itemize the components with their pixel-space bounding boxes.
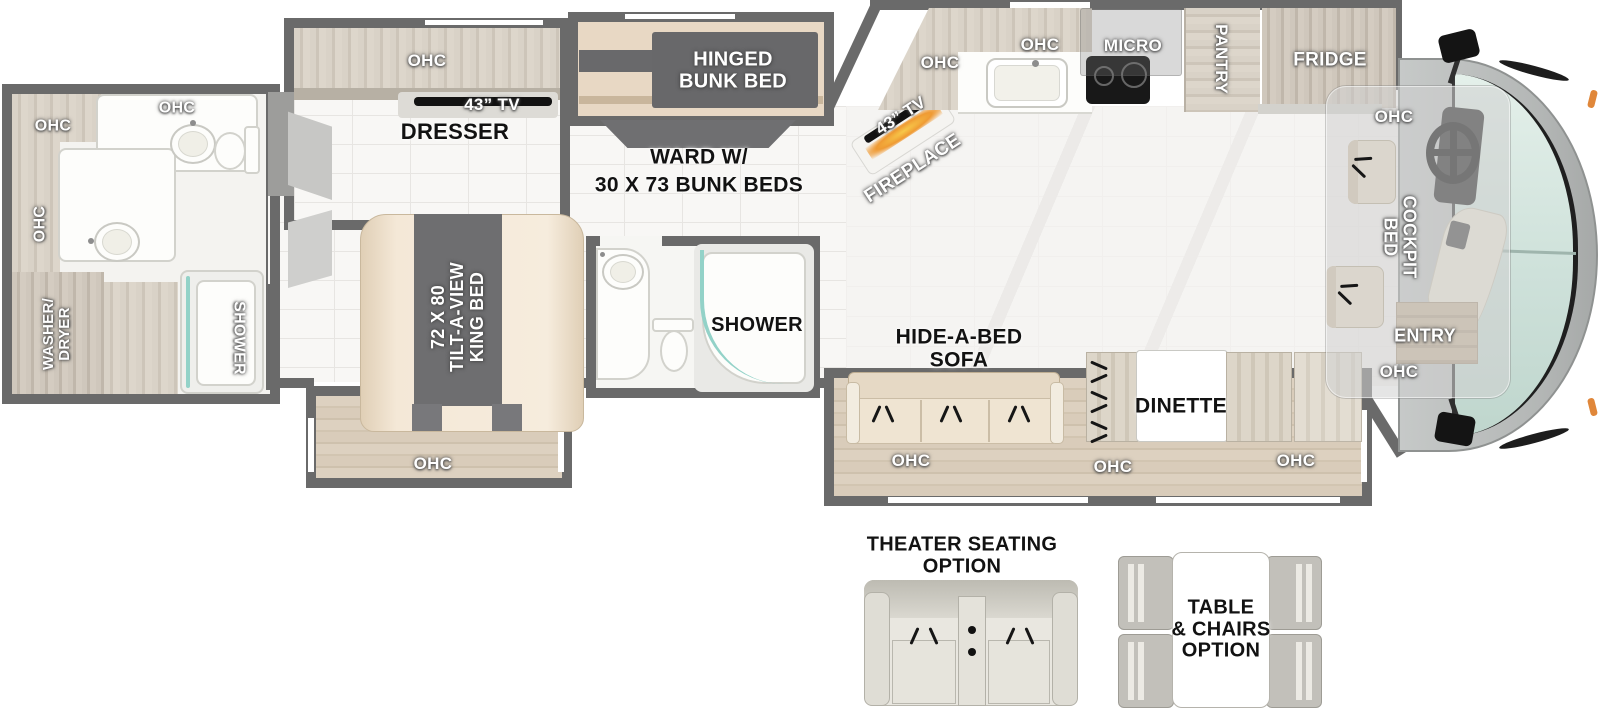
faucet [1032, 60, 1039, 67]
recline-mark [1004, 404, 1034, 424]
recline-mark [1089, 417, 1109, 447]
cupholder [968, 648, 976, 656]
faucet [190, 120, 196, 126]
bed-slide-ohc-label: OHC [414, 455, 453, 473]
bed-foot-cushion [412, 404, 442, 431]
chair-slat [1306, 564, 1312, 622]
kitchen-ohc-label: OHC [1021, 36, 1060, 54]
toilet-tank [244, 126, 260, 174]
bedroom-ohc-label: OHC [408, 52, 447, 70]
fridge-label: FRIDGE [1293, 51, 1367, 72]
rear-ohc-top-label: OHC [159, 99, 195, 116]
recline-mark [936, 404, 966, 424]
rear-ohc-side-label: OHC [31, 206, 48, 242]
sofa-seam [920, 400, 922, 442]
dresser-label: DRESSER [401, 120, 509, 144]
theater-seat-cushion [988, 640, 1050, 704]
recline-mark [1089, 387, 1109, 417]
theater-seat-cushion [892, 640, 956, 704]
entry-label: ENTRY [1394, 326, 1456, 345]
washer-dryer-label: WASHER/ DRYER [41, 298, 73, 370]
chair [1118, 556, 1174, 630]
theater-option-label: THEATER SEATING OPTION [867, 534, 1057, 577]
sink-basin [178, 131, 208, 157]
toilet-bowl [660, 330, 688, 372]
chair-slat [1296, 642, 1302, 700]
sink-basin [102, 229, 132, 255]
chair-slat [1128, 564, 1134, 622]
ward-label: WARD W/ 30 X 73 BUNK BEDS [595, 144, 803, 201]
side-mirror [1437, 28, 1481, 64]
dinette-bench [1226, 352, 1292, 442]
rear-shower-label: SHOWER [230, 301, 247, 375]
recline-mark [1002, 626, 1038, 646]
recline-mark [868, 404, 898, 424]
bed-foot-cushion [492, 404, 522, 431]
sofa-armrest [846, 382, 860, 444]
chair [1266, 634, 1322, 708]
faucet [88, 238, 94, 244]
sink-basin [610, 261, 636, 283]
chair-slat [1306, 642, 1312, 700]
cockpit-ohc-top-label: OHC [1375, 108, 1414, 126]
table-chairs-option-label: TABLE & CHAIRS OPTION [1171, 598, 1270, 663]
chair [1266, 556, 1322, 630]
door-opening [600, 236, 662, 246]
front-ohc-label: OHC [1277, 452, 1316, 470]
slide-indicator [888, 497, 1088, 503]
sink-basin [994, 65, 1060, 101]
faucet [600, 252, 605, 257]
pantry-label: PANTRY [1212, 24, 1230, 94]
sofa-armrest [1050, 382, 1064, 444]
slide-indicator [308, 418, 314, 472]
cockpit-ohc-bottom-label: OHC [1380, 363, 1419, 381]
dinette-label: DINETTE [1135, 396, 1227, 419]
rv-floorplan: OHC OHC OHC WASHER/ DRYER SHOWER OHC 43”… [0, 0, 1600, 709]
cupholder [968, 626, 976, 634]
chair-slat [1128, 642, 1134, 700]
recline-mark [1089, 357, 1109, 387]
bedroom-tv-label: 43” TV [464, 96, 520, 114]
chair-slat [1138, 564, 1144, 622]
kitchen-ohc-corner-label: OHC [921, 54, 960, 72]
chair [1118, 634, 1174, 708]
king-bed-label: 72 X 80 TILT-A-VIEW KING BED [429, 262, 487, 372]
bath-door [288, 210, 332, 288]
slide-indicator [625, 14, 735, 19]
hinged-bunk-label: HINGED BUNK BED [679, 49, 787, 92]
theater-armrest [1052, 592, 1078, 706]
slide-indicator [425, 20, 543, 25]
rear-ohc-corner-label: OHC [35, 117, 71, 134]
micro-label: MICRO [1104, 37, 1162, 55]
marker-light [1587, 89, 1598, 108]
sofa-ohc-label: OHC [892, 452, 931, 470]
shower-glass [186, 276, 190, 388]
chair-slat [1138, 642, 1144, 700]
chair-slat [1296, 564, 1302, 622]
cockpit-bed-label: COCKPIT BED [1380, 195, 1419, 278]
dinette-ohc-label: OHC [1094, 458, 1133, 476]
mid-shower-label: SHOWER [711, 315, 803, 337]
bunk-ladder [579, 50, 657, 72]
recline-mark [906, 626, 942, 646]
theater-armrest [864, 592, 890, 706]
sofa-label: HIDE-A-BED SOFA [896, 326, 1023, 371]
marker-light [1587, 397, 1598, 416]
side-mirror [1434, 411, 1477, 447]
rear-bath-cabinet [104, 282, 178, 394]
toilet-bowl [214, 132, 246, 170]
sofa-seam [988, 400, 990, 442]
slide-indicator [1156, 497, 1340, 503]
